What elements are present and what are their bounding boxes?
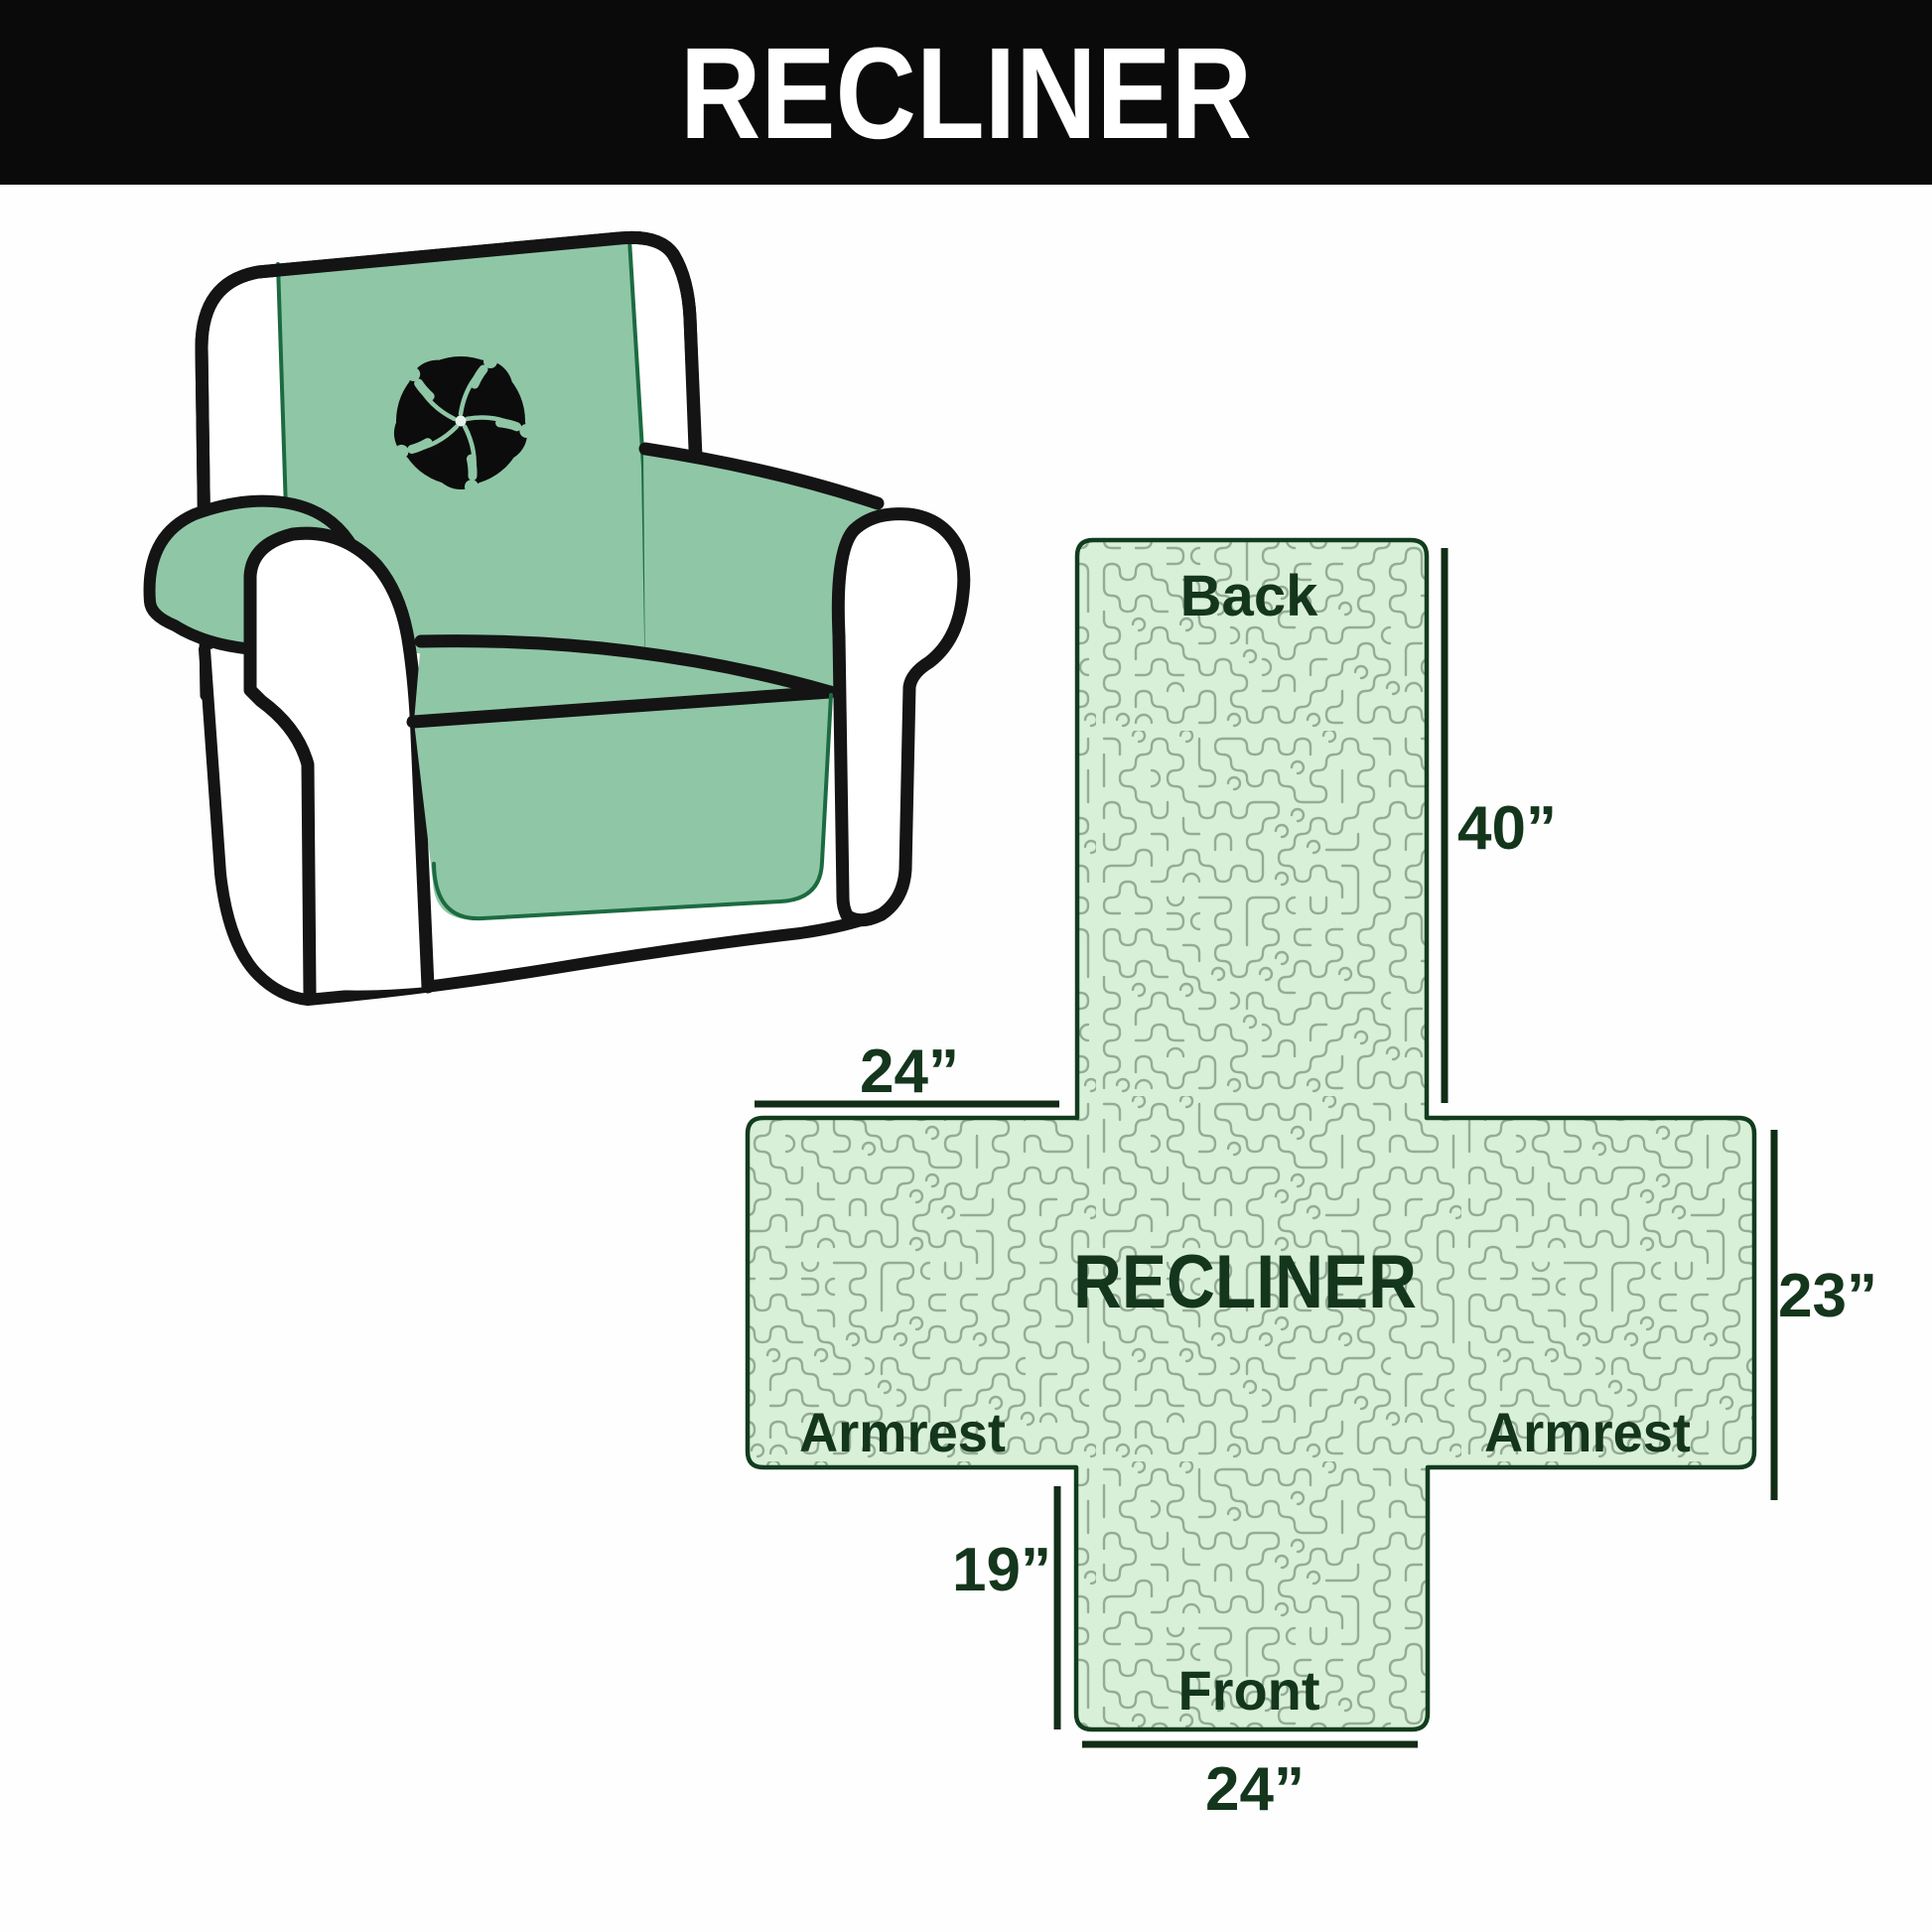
- svg-text:Armrest: Armrest: [1484, 1401, 1691, 1463]
- svg-text:Armrest: Armrest: [799, 1401, 1006, 1463]
- svg-text:RECLINER: RECLINER: [1073, 1240, 1417, 1324]
- svg-text:Front: Front: [1177, 1659, 1319, 1722]
- svg-text:24”: 24”: [1205, 1755, 1305, 1824]
- svg-text:23”: 23”: [1778, 1262, 1877, 1330]
- svg-text:40”: 40”: [1457, 794, 1557, 863]
- svg-text:19”: 19”: [952, 1536, 1051, 1604]
- svg-text:Back: Back: [1180, 564, 1318, 628]
- svg-text:24”: 24”: [860, 1037, 959, 1106]
- svg-text:RECLINER: RECLINER: [680, 20, 1252, 166]
